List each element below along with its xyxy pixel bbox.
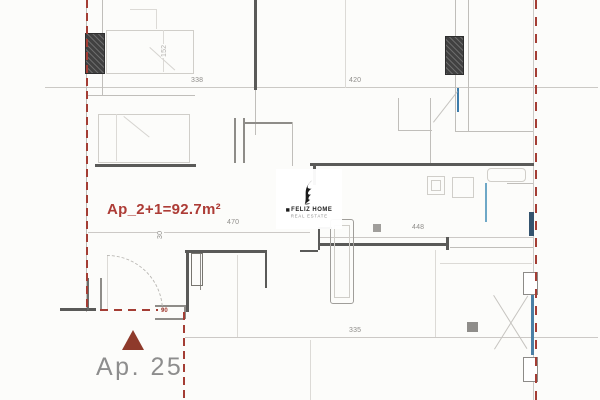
boundary-entry (100, 309, 158, 311)
glass-partition (485, 183, 487, 222)
counter (487, 168, 526, 182)
column-marker (467, 322, 478, 332)
watermark-brand-row: FELIZ HOME (286, 206, 332, 212)
wall-segment (398, 130, 432, 131)
window-frame (529, 212, 534, 236)
dim-top-left: 338 (190, 77, 204, 84)
window-glass (531, 293, 534, 355)
door-width-tag: 90 (161, 308, 168, 314)
logo-square-icon (286, 207, 289, 210)
dim-top-right: 420 (348, 77, 362, 84)
wall-segment (292, 122, 293, 166)
shaft-wall (234, 118, 236, 163)
wall-segment (450, 247, 534, 248)
boundary-left (86, 0, 88, 310)
wall-segment (255, 88, 256, 135)
bed (106, 30, 194, 74)
toilet-seat (431, 180, 441, 191)
kitchen-peninsula-inner (334, 225, 350, 298)
wall-step (318, 227, 320, 250)
dim-line-living (88, 232, 310, 233)
shower (452, 177, 474, 198)
wall-entry (60, 308, 96, 311)
wall-center (254, 0, 257, 90)
wall-segment (455, 131, 534, 132)
boundary-right (535, 0, 537, 400)
wall-segment (468, 0, 469, 131)
bed (98, 114, 190, 163)
dim-bed-length: 152 (161, 44, 168, 58)
closet-line (156, 9, 157, 29)
apartment-number-label: Ap. 25 (96, 353, 183, 382)
wall-bedroom (95, 164, 196, 167)
wall-segment (86, 95, 195, 96)
apartment-area-label: Ap_2+1=92.7m² (107, 201, 221, 218)
extension-line (345, 0, 346, 88)
dim-line-top (45, 87, 598, 88)
floor-plan: 90 338 420 470 30 448 335 152 Ap_2+1=92.… (0, 0, 600, 400)
watermark-brand-text: FELIZ HOME (291, 206, 332, 212)
wall-bath (446, 237, 449, 250)
dim-living-width: 470 (226, 219, 240, 226)
extension-line (310, 340, 311, 400)
wall-step (300, 250, 318, 252)
wall-entry-piece (155, 318, 185, 320)
column (445, 36, 464, 75)
watermark: FELIZ HOME REAL ESTATE (276, 169, 342, 229)
wall-segment (430, 98, 431, 164)
dim-bottom-width: 335 (348, 327, 362, 334)
shaft-wall (243, 122, 292, 124)
boundary-mid (183, 312, 185, 400)
unit-marker-triangle-icon (122, 330, 144, 350)
wall-segment (398, 98, 399, 131)
dim-living-offset: 30 (157, 230, 164, 240)
watermark-tagline: REAL ESTATE (291, 214, 328, 218)
dim-hall-width: 448 (411, 224, 425, 231)
wall-entry-side (100, 278, 102, 310)
extension-line (435, 250, 436, 337)
wall-segment (440, 263, 532, 264)
wall-hall (265, 250, 267, 288)
shaft-wall (243, 118, 245, 163)
wall-segment (507, 183, 534, 184)
entry-door-arc (107, 255, 163, 311)
bed-line (116, 114, 117, 161)
extension-line (237, 255, 238, 337)
shaft-box (191, 253, 203, 286)
feliz-home-logo-icon (298, 179, 320, 205)
wall-corridor (310, 163, 534, 166)
column-marker (373, 224, 381, 232)
closet-line (130, 9, 156, 10)
wall-hall (186, 250, 189, 312)
